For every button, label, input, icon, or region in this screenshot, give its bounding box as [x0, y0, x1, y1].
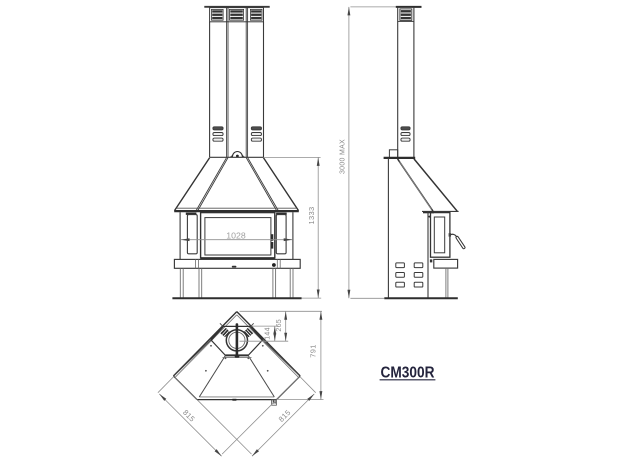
svg-text:144: 144	[265, 327, 272, 340]
svg-text:791: 791	[308, 344, 317, 357]
svg-text:815: 815	[277, 408, 293, 424]
svg-text:3000 MAX: 3000 MAX	[340, 139, 347, 174]
svg-text:815: 815	[181, 408, 197, 424]
svg-text:CM300R: CM300R	[381, 364, 435, 381]
svg-text:1333: 1333	[307, 207, 316, 225]
svg-text:265: 265	[276, 319, 283, 332]
svg-text:1028: 1028	[226, 231, 246, 241]
